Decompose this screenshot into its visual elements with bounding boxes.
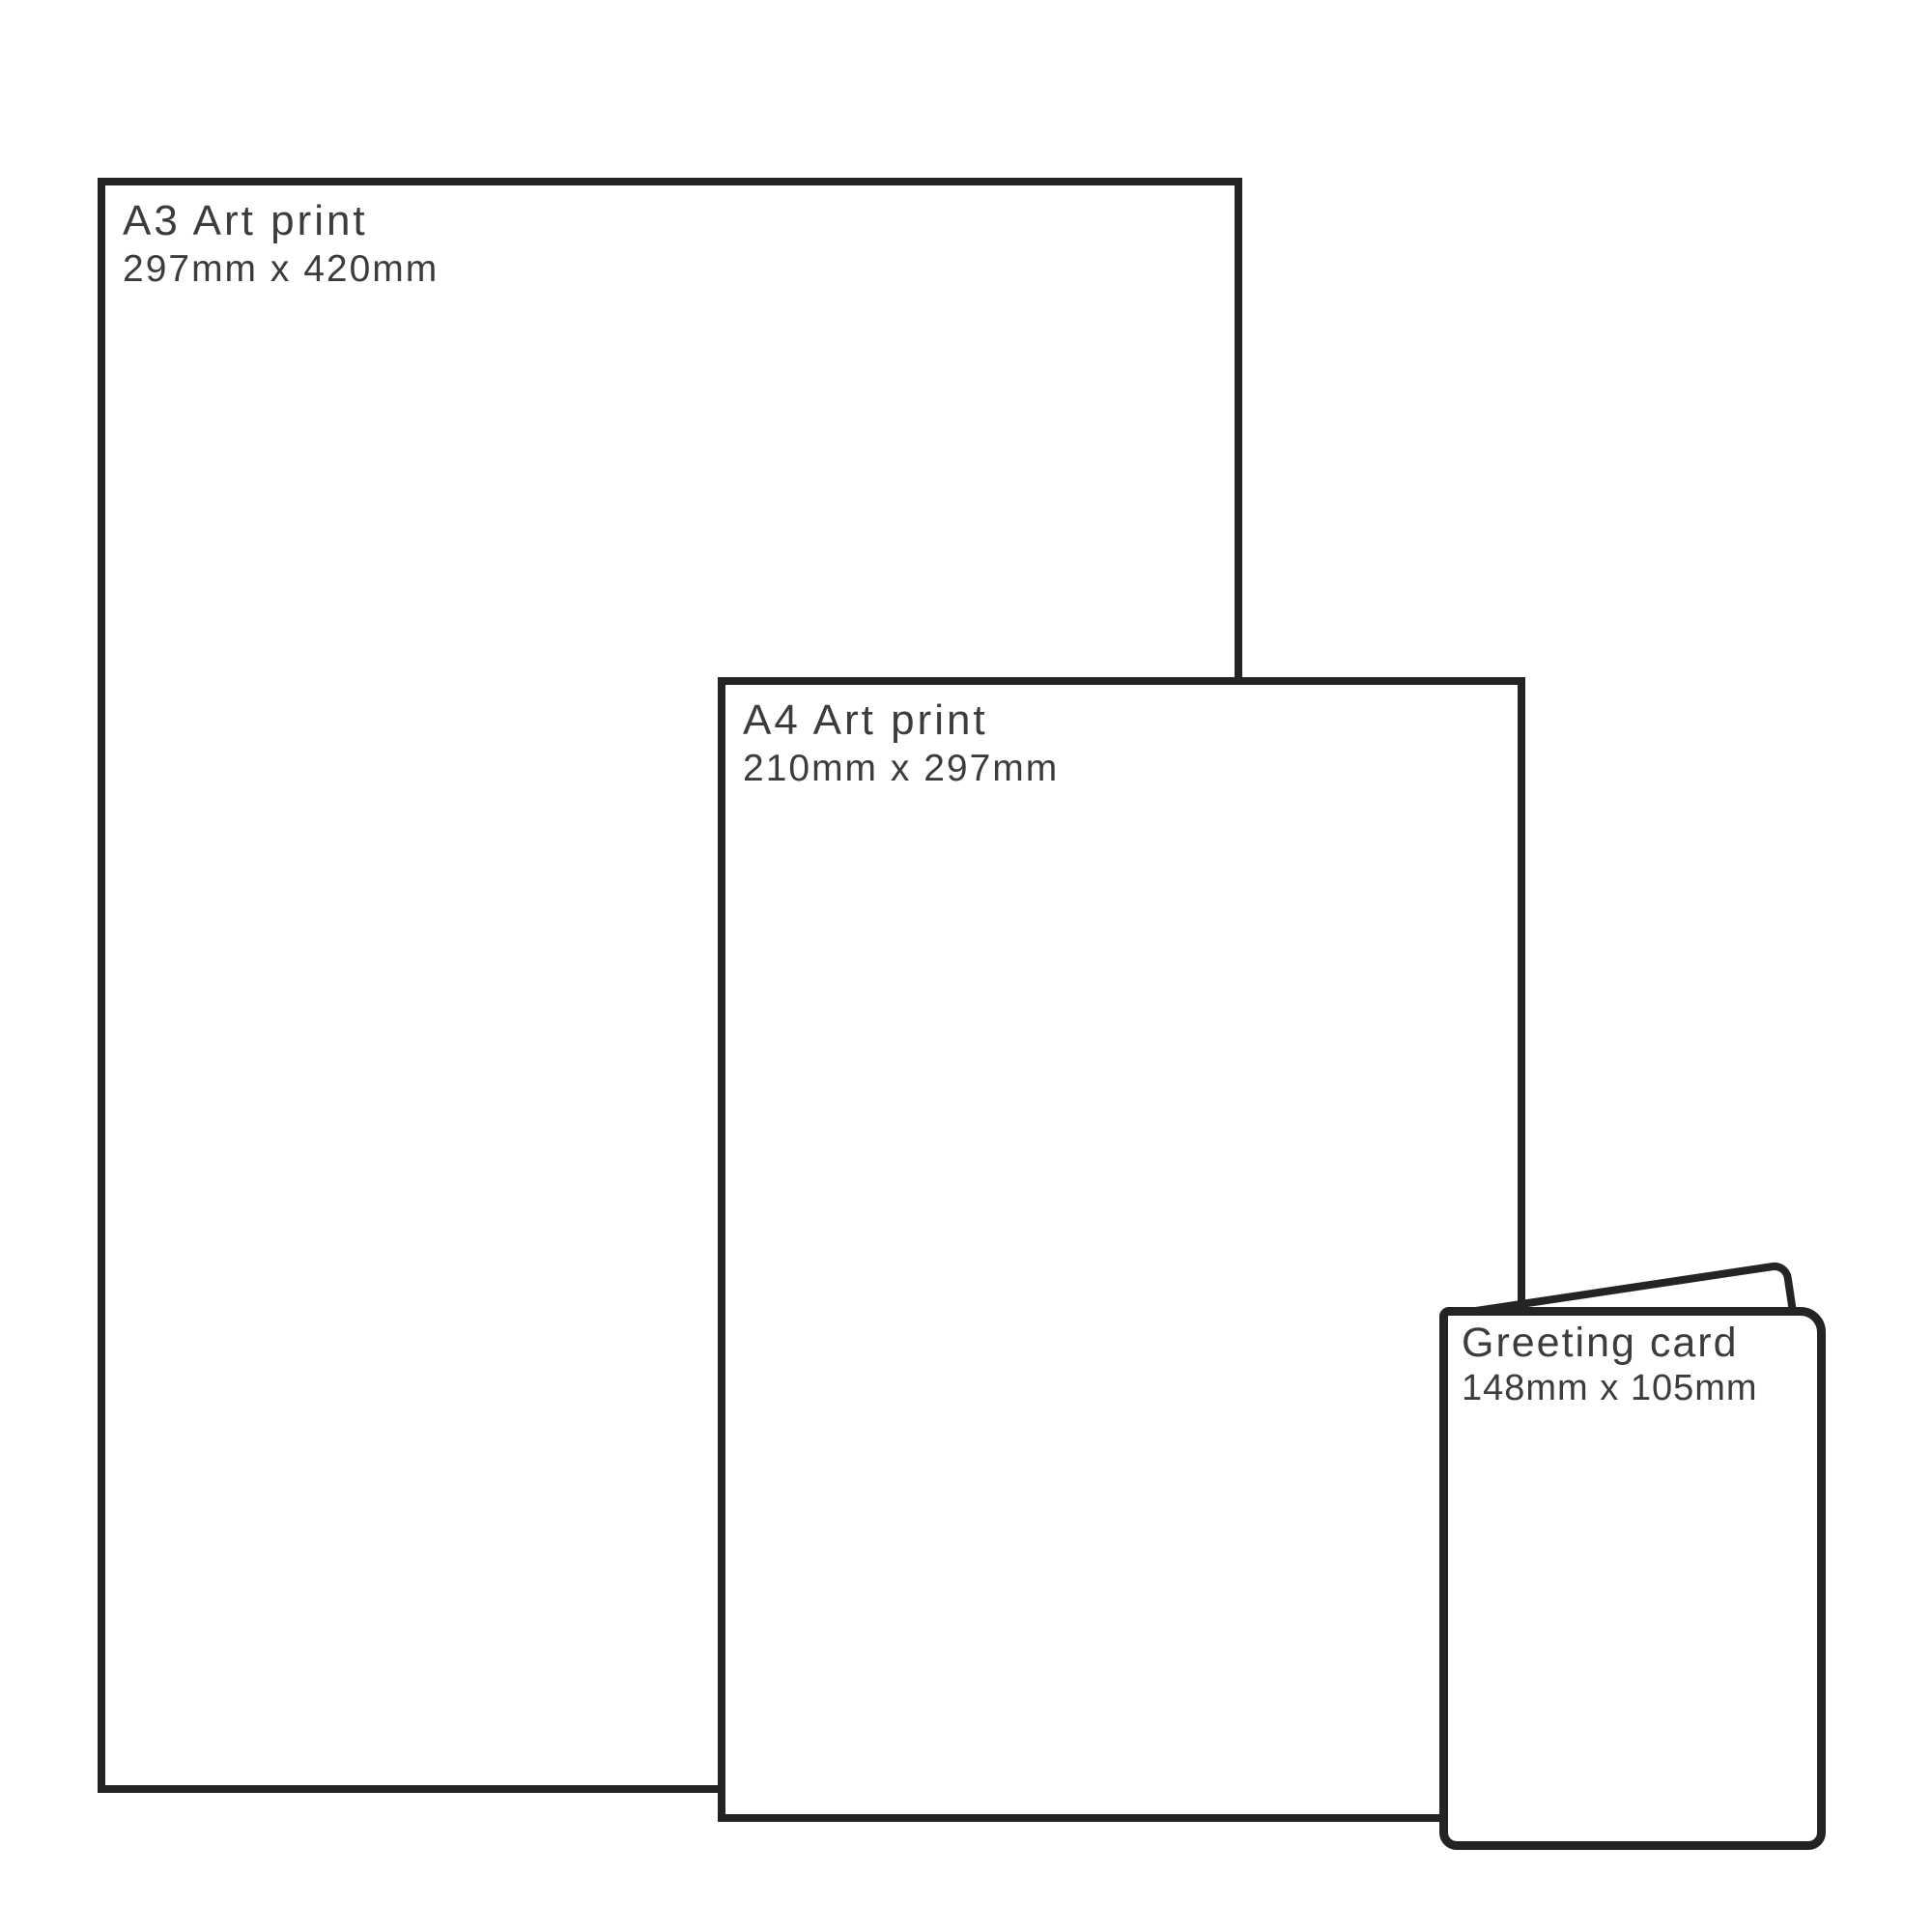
greeting-card-label: Greeting card 148mm x 105mm [1448,1316,1817,1410]
greeting-card-dimensions: 148mm x 105mm [1462,1368,1807,1410]
a3-dimensions: 297mm x 420mm [123,248,1219,292]
greeting-card-title: Greeting card [1462,1320,1807,1366]
a4-title: A4 Art print [743,696,1502,744]
a4-dimensions: 210mm x 297mm [743,748,1502,791]
a3-title: A3 Art print [123,197,1219,244]
print-size-comparison-diagram: A3 Art print 297mm x 420mm A4 Art print … [0,0,1932,1932]
a4-label: A4 Art print 210mm x 297mm [725,685,1518,791]
a4-art-print-sheet: A4 Art print 210mm x 297mm [718,677,1525,1822]
greeting-card-sheet: Greeting card 148mm x 105mm [1439,1307,1826,1850]
a3-label: A3 Art print 297mm x 420mm [105,185,1235,292]
